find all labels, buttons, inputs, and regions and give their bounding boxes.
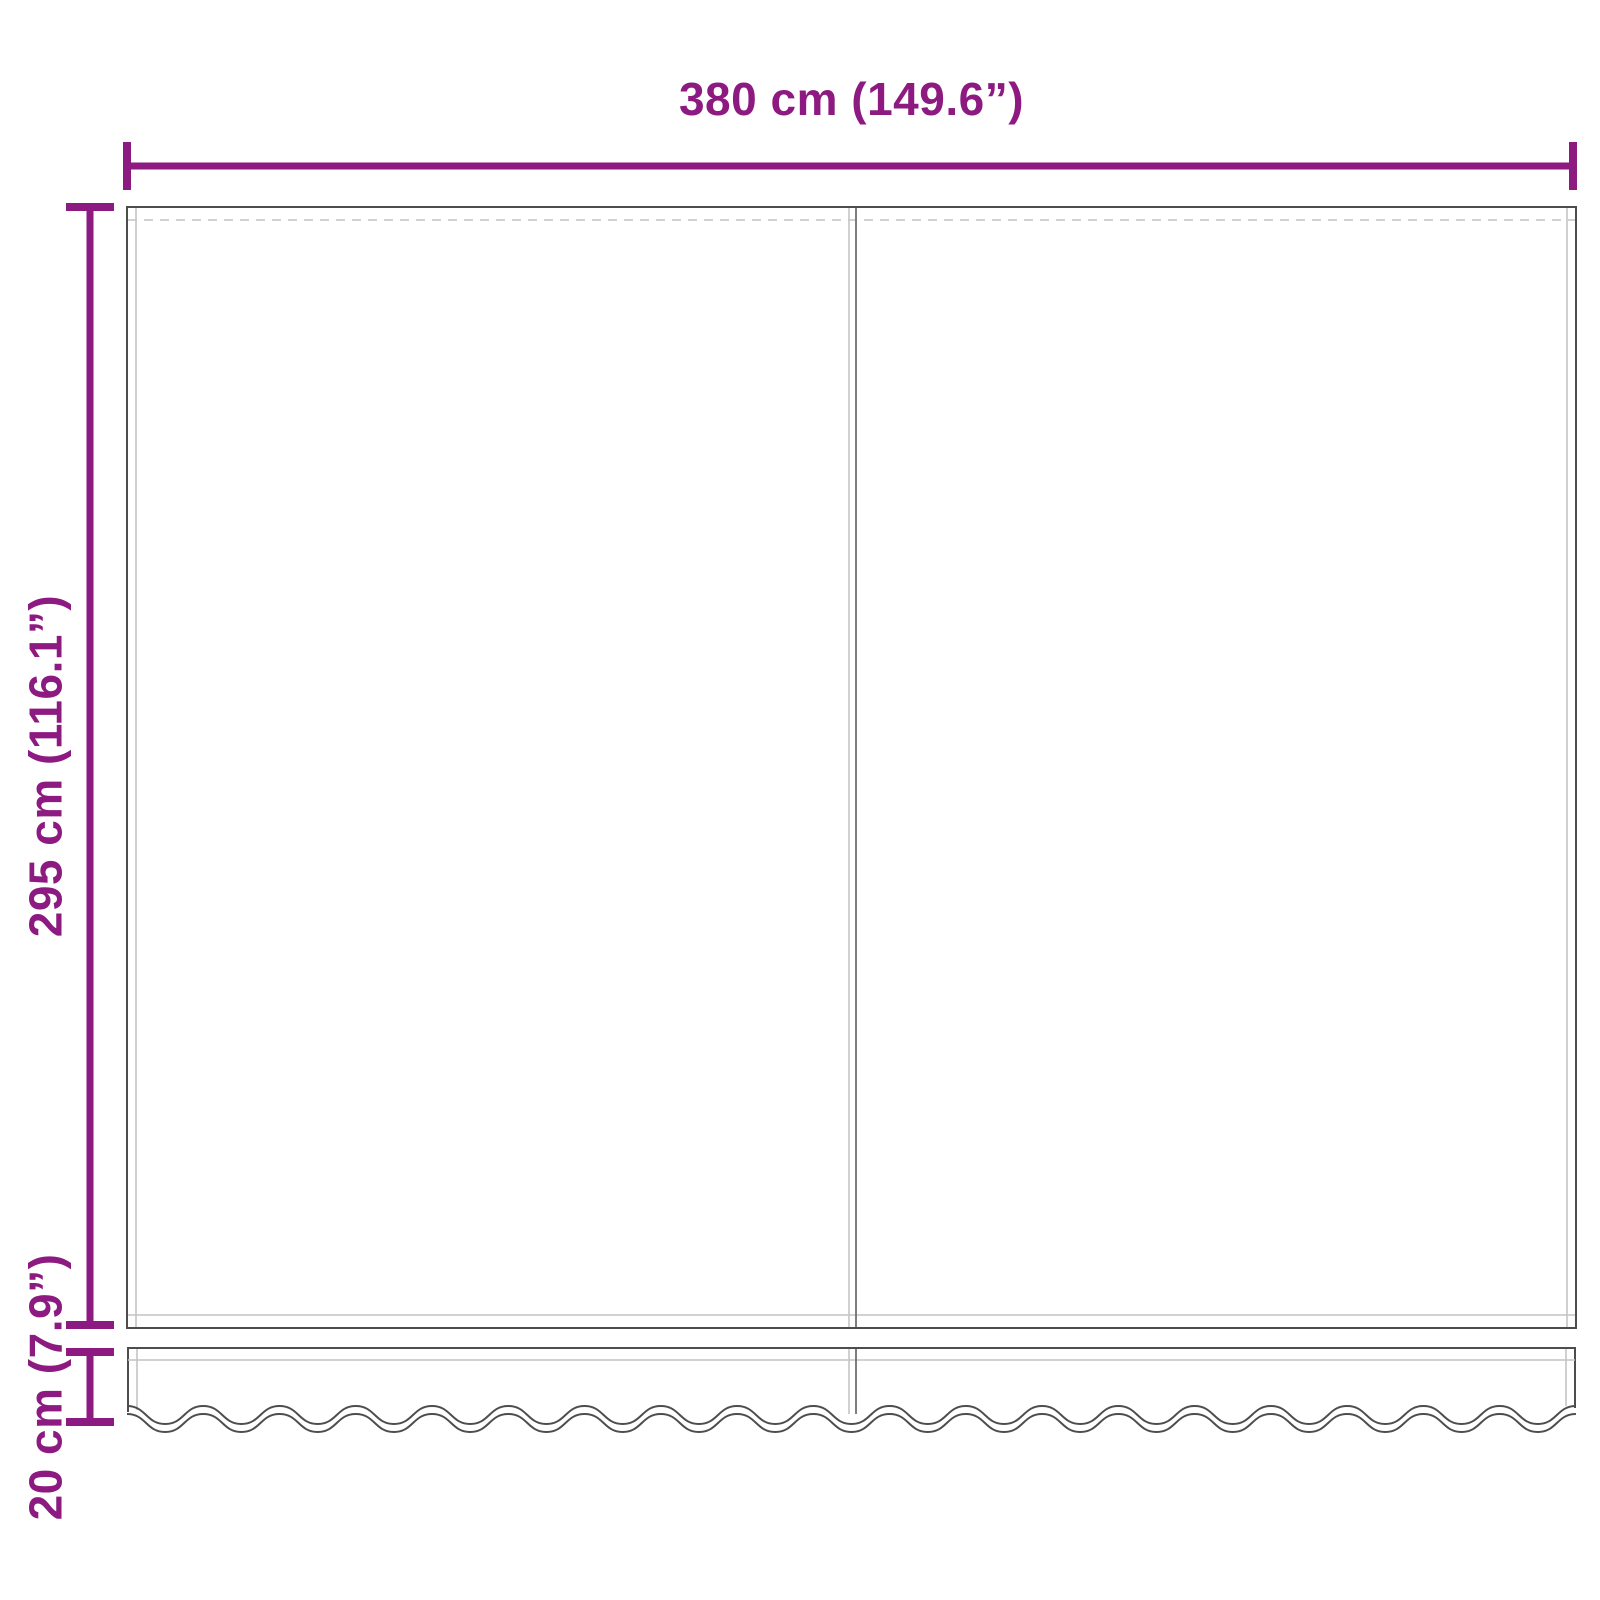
diagram-drawing xyxy=(0,0,1600,1600)
height-dimension-label: 295 cm (116.1”) xyxy=(21,595,72,938)
valance-height-dimension-label: 20 cm (7.9”) xyxy=(21,1254,72,1521)
valance-scallop-edge-upper xyxy=(127,1406,1576,1424)
fabric-panel xyxy=(127,207,1576,1328)
valance-height-dimension xyxy=(66,1352,114,1422)
valance xyxy=(127,1348,1576,1432)
height-dimension xyxy=(66,207,114,1325)
width-dimension-label: 380 cm (149.6”) xyxy=(127,74,1576,125)
fabric-panel-outline xyxy=(127,207,1576,1328)
product-dimension-diagram: 380 cm (149.6”) 295 cm (116.1”) 20 cm (7… xyxy=(0,0,1600,1600)
width-dimension xyxy=(127,142,1573,190)
